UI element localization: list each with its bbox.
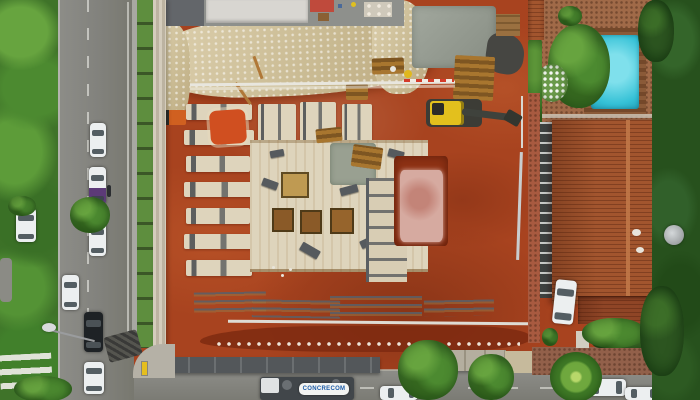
- car-at-intersection: [84, 362, 104, 394]
- street-tree: [398, 340, 458, 400]
- palm-tree: [550, 352, 602, 400]
- street-tree: [468, 354, 514, 400]
- tree-bottom-left: [14, 376, 72, 400]
- foundation-pad: [258, 104, 296, 144]
- sidewalk-gap: [0, 258, 12, 302]
- footing-row: [186, 156, 250, 172]
- foundation-pit: [281, 172, 309, 198]
- material-pallet: [364, 2, 392, 17]
- post-cap: [272, 266, 275, 269]
- silver-pipe: [521, 96, 523, 148]
- plank-cluster: [351, 144, 384, 170]
- footing-row: [184, 182, 256, 197]
- plank-cluster: [315, 127, 342, 144]
- crate-stack: [496, 14, 520, 36]
- small-tree: [558, 6, 582, 26]
- footing-row: [186, 208, 250, 224]
- wood-box: [318, 13, 329, 21]
- truck-equipment: [282, 380, 292, 390]
- orange-tarp: [209, 109, 247, 145]
- aerial-photo: CONCRECOM: [0, 0, 700, 400]
- tree-top-right: [638, 0, 674, 62]
- small-roof-corner: [528, 0, 544, 40]
- tree-over-suv: [8, 196, 36, 216]
- site-hoarding-dark: [162, 357, 380, 373]
- foundation-pit: [330, 208, 354, 234]
- yellow-bucket: [404, 70, 412, 78]
- lumber-stack: [372, 57, 405, 74]
- motorbike: [107, 185, 111, 197]
- yellow-object: [351, 2, 356, 7]
- orange-machine: [164, 110, 186, 125]
- post-cap: [289, 268, 292, 271]
- parked-car: [90, 123, 106, 157]
- driving-car: [62, 275, 79, 310]
- satellite-dish: [664, 225, 684, 245]
- blue-object: [338, 4, 342, 8]
- neighbor-flat-roof: [206, 0, 308, 23]
- overhanging-tree: [70, 197, 110, 233]
- yellow-bollard: [142, 362, 147, 375]
- road-edge-line: [127, 2, 129, 344]
- post-cap: [281, 274, 284, 277]
- excavator-cab: [432, 103, 444, 115]
- survey-pole-striped: [404, 79, 454, 82]
- lumber-stack: [346, 84, 368, 100]
- roof-vent: [632, 229, 641, 236]
- footing-row: [186, 260, 252, 276]
- street-lamp-head: [42, 323, 56, 332]
- red-awning: [310, 0, 334, 12]
- concrete-block-row: [214, 340, 520, 350]
- truck-company-banner: CONCRECOM: [299, 383, 349, 395]
- pink-water-puddle: [400, 170, 443, 242]
- foundation-pad: [342, 104, 372, 144]
- roof-ridge: [626, 120, 630, 304]
- brick-path: [528, 93, 540, 343]
- construction-fence: [153, 0, 166, 352]
- formwork-assembly: [424, 299, 494, 316]
- formwork-assembly: [330, 296, 422, 316]
- road-edge-line: [58, 0, 60, 400]
- concrete-truck-cab: [261, 378, 279, 393]
- front-yard-shrubs: [582, 318, 646, 348]
- foundation-pit: [272, 208, 294, 232]
- verge-grass: [137, 0, 153, 348]
- formwork-assembly: [252, 299, 340, 319]
- white-bucket: [390, 66, 396, 72]
- lumber-stack: [453, 55, 495, 101]
- foundation-pit: [300, 210, 322, 234]
- black-car: [84, 312, 103, 352]
- roof-vent: [636, 247, 644, 253]
- truck-banner-text: CONCRECOM: [303, 386, 346, 392]
- front-yard-shrub: [542, 328, 558, 346]
- tree-bottom-right: [640, 286, 684, 376]
- footing-row: [184, 234, 254, 249]
